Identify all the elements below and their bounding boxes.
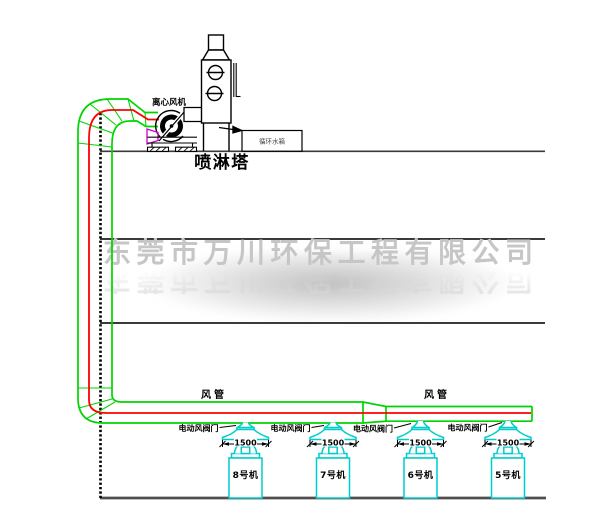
dimension-label: 1500 <box>322 439 345 448</box>
pipe-arrow <box>233 127 242 133</box>
tank-label: 循环水箱 <box>259 137 286 146</box>
tower-chimney <box>209 35 224 50</box>
valve-label-4: 电动风阀门 <box>448 423 488 433</box>
dimension-label: 1500 <box>409 439 432 448</box>
tower-label: 喷淋塔 <box>194 152 250 173</box>
machine-label: 8号机 <box>233 469 259 481</box>
machine-label: 6号机 <box>408 469 434 481</box>
machine-unit-6: 1500 6号机 <box>395 421 447 498</box>
machine-unit-8: 1500 8号机 <box>220 423 272 499</box>
fan-label: 离心风机 <box>152 97 187 108</box>
duct-green <box>78 99 532 423</box>
machine-unit-7: 1500 7号机 <box>307 423 359 499</box>
machine-label: 5号机 <box>495 469 521 481</box>
pipe-red <box>89 110 531 413</box>
machine-unit-5: 1500 5号机 <box>482 421 534 498</box>
valve-label-2: 电动风阀门 <box>271 423 311 433</box>
tower-side-pipe <box>234 63 241 97</box>
cad-diagram-canvas: 东莞市万川环保工程有限公司 东莞市万川环保工程有限公司 <box>0 0 600 525</box>
machine-label: 7号机 <box>320 469 346 481</box>
spray-tower <box>202 35 303 151</box>
duct-label-left: 风管 <box>201 388 227 401</box>
duct-label-right: 风管 <box>424 388 450 401</box>
dimension-label: 1500 <box>234 439 257 448</box>
valve-label-1: 电动风阀门 <box>179 423 219 433</box>
dimension-label: 1500 <box>497 439 520 448</box>
diagram-svg: 1500 8号机 <box>0 0 600 525</box>
valve-label-3: 电动风阀门 <box>353 424 393 434</box>
fan-stand <box>148 137 198 151</box>
